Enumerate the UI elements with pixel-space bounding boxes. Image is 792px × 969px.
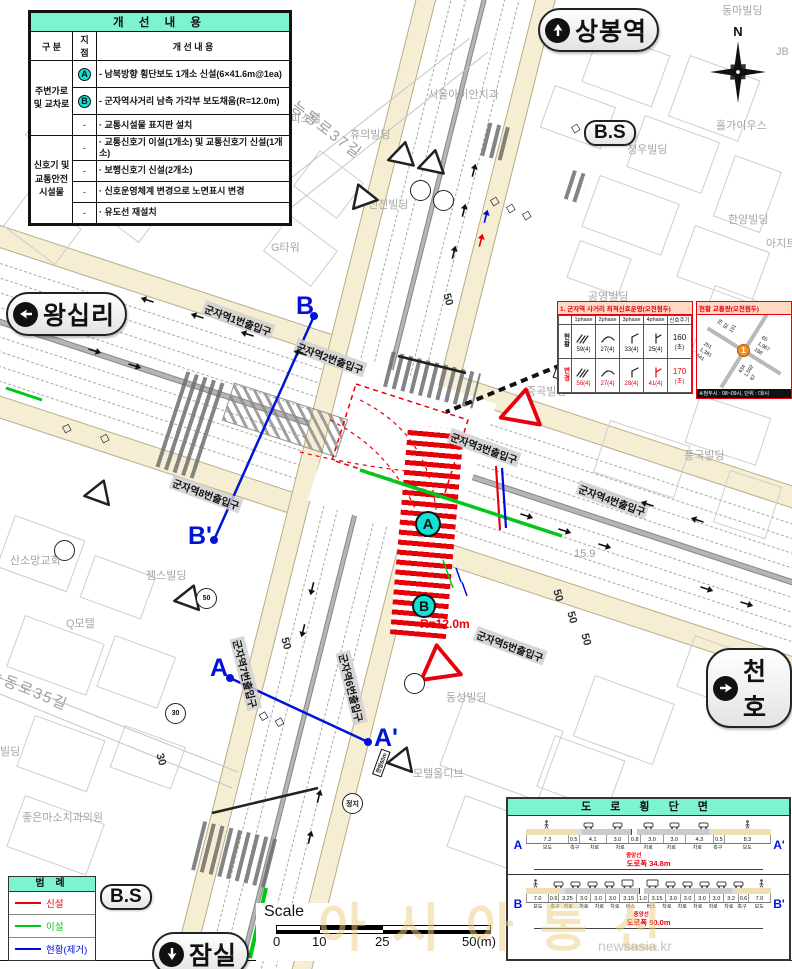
segment-width-value: 3.0 [606, 894, 620, 902]
building-label: 서울아이안치과 [428, 86, 499, 102]
stop-line [398, 356, 466, 373]
building-label: 동성빌딩 [446, 689, 486, 705]
segment-width-value: 7.0 [749, 894, 771, 902]
segment-type-label: 버스 [643, 903, 659, 910]
pedestrian-icon [526, 820, 568, 829]
improvement-row: · 교통신호기 이설(1개소) 및 교통신호기 신설(1개소) [97, 136, 290, 161]
section-end-label: A' [771, 820, 787, 852]
car-icon [661, 822, 687, 829]
segment-type-label: 보도 [526, 844, 569, 851]
bus-icon [643, 879, 662, 888]
elevation-label: 15.9 [574, 548, 595, 560]
building-label: 동마빌딩 [722, 2, 762, 18]
segment-width-value: 7.3 [526, 835, 569, 843]
pedestrian-icon [725, 820, 772, 829]
existing-works-blue [456, 468, 506, 596]
bus-icon [618, 879, 637, 888]
pedestrian-icon [526, 879, 545, 888]
building-label: 한양빌딩 [728, 211, 768, 227]
scale-segment [383, 926, 490, 933]
legend-item-label: 신설 [46, 896, 63, 910]
segment-type-label: 측구 [737, 903, 747, 910]
legend-title: 범 례 [9, 877, 95, 892]
direction-badge-cheonho: 천호 [706, 648, 792, 728]
improvement-row: · 교통시설물 표지판 설치 [97, 115, 290, 136]
segment-width-value: 3.15 [620, 894, 638, 902]
car-icon [573, 822, 605, 829]
segment-type-label: 보도 [526, 903, 550, 910]
new-warning-sign-icon [497, 382, 549, 429]
segment-type-label: 차로 [660, 844, 683, 851]
volume-numbers-west: 2511,391541 [697, 341, 716, 365]
legend-item-label: 현황(제거) [46, 942, 87, 956]
segment-type-label: 측구 [569, 844, 581, 851]
segment-type-label: 차로 [659, 903, 674, 910]
segment-width-value: 3.15 [649, 894, 667, 902]
building-label: 풍국빌딩 [684, 447, 724, 463]
segment-type-label: 차로 [690, 903, 705, 910]
segment-width-value: 3.0 [681, 894, 695, 902]
segment-type-label: 차로 [721, 903, 737, 910]
segment-width-value: 0.5 [714, 835, 725, 843]
cross-section-B: B7.00.63.253.03.03.03.151.03.153.03.03.0… [508, 875, 789, 929]
car-icon [662, 881, 679, 888]
signal-timing-table: 1. 군자역 사거리 최적신호운영(오전첨두) 1phase2phase3pha… [557, 301, 693, 394]
building-label: 정우빌딩 [627, 141, 667, 157]
segment-type-label: 버스 [623, 903, 639, 910]
car-icon [635, 822, 661, 829]
point-b-badge: B [78, 95, 91, 108]
left-arrow-icon [13, 302, 38, 327]
segment-width-value: 3.2 [724, 894, 739, 902]
segment-type-label: 차로 [560, 903, 576, 910]
section-end-label: B' [771, 879, 787, 911]
regulatory-sign-icon: 정지 [342, 793, 363, 814]
bus-stop-badge: B.S [584, 120, 636, 146]
legend-line-sample [15, 925, 41, 927]
improvement-row: - 군자역사거리 남측 가각부 보도채움(R=12.0m) [97, 88, 290, 115]
legend-item: 신설 [9, 892, 95, 915]
radius-label: R=12.0m [420, 617, 470, 631]
improvement-row: - 남북방향 횡단보도 1개소 신설(6×41.6m@1ea) [97, 61, 290, 88]
segment-width-value: 8.3 [725, 835, 771, 843]
phase-cell: 41(4) [644, 359, 668, 393]
legend-line-sample [15, 902, 41, 904]
section-a-label: A [210, 654, 228, 683]
section-start-label: A [510, 820, 526, 852]
phase-cell: 33(4) [620, 325, 644, 359]
down-arrow-icon [159, 942, 184, 967]
compass-star-icon [708, 39, 768, 105]
plan-drawing: 대영빌딩동마빌딩JB서울아이안치과평강오피스텔휴의빌딩홀가이우스정우빌딩선진빌딩… [0, 0, 792, 969]
scale-tick-label: 0 [273, 934, 280, 949]
section-start-label: B [510, 879, 526, 911]
signal-row-label: 변경 [559, 359, 572, 393]
phase-header: 신호주기 [668, 316, 692, 325]
segment-type-label: 차로 [576, 903, 591, 910]
direction-badge-wangsimni: 왕십리 [6, 292, 127, 336]
phase-header: 4phase [644, 316, 668, 325]
volume-panel-title: 현황 교통량(오전첨두) [697, 302, 791, 315]
legend: 범 례 신설이설현황(제거) [8, 876, 96, 961]
stop-line [212, 788, 318, 813]
segment-width-value: 3.0 [577, 894, 591, 902]
point-b-marker: B [412, 594, 436, 618]
group-category: 주변가로 및 교차로 [31, 61, 73, 136]
segment-type-label: 보도 [723, 844, 771, 851]
regulatory-sign-icon: 30 [165, 703, 186, 724]
scale-segment [277, 926, 320, 933]
car-icon [604, 822, 630, 829]
segment-type-label: 측구 [550, 903, 560, 910]
regulatory-sign-icon [410, 180, 431, 201]
cycle-cell: 160(초) [668, 325, 692, 359]
segment-width-value: 3.0 [591, 894, 605, 902]
building-label: 아지트 [766, 235, 792, 251]
segment-type-label: 차로 [609, 844, 632, 851]
intersection-number-marker: 1 [737, 344, 750, 357]
phase-cell: 58(4) [572, 359, 596, 393]
pedestrian-icon [752, 879, 771, 888]
segment-width-value: 1.0 [638, 894, 649, 902]
car-icon [567, 881, 584, 888]
road-cross-section-inset: 도 로 횡 단 면 A7.30.54.13.00.83.03.04.30.58.… [506, 797, 791, 961]
legend-item-label: 이설 [46, 919, 63, 933]
building-label: 홀가이우스 [716, 117, 767, 133]
improvement-table-title: 개 선 내 용 [31, 13, 290, 32]
segment-width-value: 3.0 [607, 835, 629, 843]
traffic-volume-panel: 현황 교통량(오전첨두) 1 2511,391541651,9671887992… [696, 301, 792, 399]
total-width-label: 도로폭 50.0m [623, 917, 673, 928]
car-icon [713, 881, 730, 888]
car-icon [584, 881, 601, 888]
segment-width-value: 3.0 [664, 835, 686, 843]
volume-diagram: 1 2511,391541651,96718879921514341,59267 [697, 315, 791, 389]
phase-header: 1phase [572, 316, 596, 325]
improvement-row: · 유도선 재설치 [97, 202, 290, 223]
segment-type-label: 차로 [592, 903, 607, 910]
legend-line-sample [15, 948, 41, 950]
segment-type-label: 차로 [637, 844, 660, 851]
signal-row-label: 현황 [559, 325, 572, 359]
segment-type-label: 차로 [675, 903, 690, 910]
segment-width-value: 3.0 [641, 835, 663, 843]
segment-width-value: 7.0 [526, 894, 549, 902]
car-icon [550, 881, 567, 888]
section-a-end-label: A' [374, 724, 398, 753]
building-label: JB [776, 46, 789, 58]
col-content: 개 선 내 용 [97, 32, 290, 61]
segment-width-value: 3.0 [695, 894, 709, 902]
regulatory-sign-icon [54, 540, 75, 561]
segment-type-label: 차로 [683, 844, 712, 851]
segment-width-value: 3.0 [666, 894, 680, 902]
building-label: Q모텔 [66, 615, 95, 631]
segment-type-label: 차로 [607, 903, 622, 910]
car-icon [696, 881, 713, 888]
legend-item: 현황(제거) [9, 938, 95, 960]
signal-table-title: 1. 군자역 사거리 최적신호운영(오전첨두) [558, 302, 692, 315]
scale-segment [320, 926, 383, 933]
improvement-table: 개 선 내 용 구 분 지 점 개 선 내 용 주변가로 및 교차로 A - 남… [28, 10, 292, 226]
scale-bar: Scale 0102550(m) [256, 903, 506, 961]
car-icon [687, 822, 720, 829]
segment-width-value: 0.5 [569, 835, 580, 843]
volume-note: ※첨두시 : 08~09시, 단위 : 대/시 [697, 389, 791, 398]
scale-tick-label: 50(m) [462, 934, 496, 949]
phase-cell: 25(4) [644, 325, 668, 359]
legend-item: 이설 [9, 915, 95, 938]
right-arrow-icon [713, 676, 738, 701]
car-icon [730, 881, 747, 888]
compass-north-label: N [706, 24, 770, 39]
phase-cell: 28(4) [620, 359, 644, 393]
group-category: 신호기 및 교통안전 시설물 [31, 136, 73, 224]
phase-header: 3phase [620, 316, 644, 325]
segment-width-value: 0.6 [739, 894, 749, 902]
bus-stop-badge: B.S [100, 884, 152, 910]
regulatory-sign-icon [433, 190, 454, 211]
building-label: 산소망교회 [10, 552, 61, 568]
segment-width-value: 4.3 [686, 835, 714, 843]
new-works-red [300, 384, 500, 530]
segment-width-value: 3.0 [710, 894, 724, 902]
phase-cell: 27(4) [596, 359, 620, 393]
phase-cell: 27(4) [596, 325, 620, 359]
section-b-label: B [296, 292, 314, 321]
point-a-marker: A [415, 511, 441, 537]
section-b-end-label: B' [188, 522, 212, 551]
volume-numbers-south: 4341,59267 [737, 360, 761, 382]
building-label: 빌딩 [0, 743, 20, 759]
segment-type-label: 차로 [705, 903, 720, 910]
direction-badge-jamsil: 잠실 [152, 932, 249, 969]
point-a-badge: A [78, 68, 91, 81]
segment-width-value: 4.1 [580, 835, 607, 843]
phase-header: 2phase [596, 316, 620, 325]
scale-tick-label: 25 [375, 934, 389, 949]
improvement-row: · 신호운영체계 변경으로 노면표시 변경 [97, 181, 290, 202]
scale-label: Scale [256, 903, 506, 921]
car-icon [679, 881, 696, 888]
cross-section-title: 도 로 횡 단 면 [508, 799, 789, 816]
up-arrow-icon [545, 18, 570, 43]
regulatory-sign-icon [404, 673, 425, 694]
segment-type-label: 차로 [580, 844, 608, 851]
cross-section-A: A7.30.54.13.00.83.03.04.30.58.3보도측구차로차로차… [508, 816, 789, 870]
improvement-row: · 보행신호기 신설(2개소) [97, 160, 290, 181]
direction-badge-sangbong: 상봉역 [538, 8, 659, 52]
volume-numbers-north: 7992151 [716, 316, 738, 334]
building-label: 모텔올디브 [413, 765, 464, 781]
col-category: 구 분 [31, 32, 73, 61]
segment-type-label: 보도 [747, 903, 771, 910]
total-width-label: 도로폭 34.8m [623, 858, 673, 869]
compass-rose: N [706, 24, 770, 110]
building-label: 좋은마소치과의원 [22, 809, 103, 825]
building-label: G타워 [271, 239, 300, 255]
segment-width-value: 0.8 [629, 835, 641, 843]
regulatory-sign-icon: 50 [196, 588, 217, 609]
segment-width-value: 3.25 [559, 894, 577, 902]
phase-cell: 59(4) [572, 325, 596, 359]
segment-width-value: 0.6 [549, 894, 559, 902]
cycle-cell: 170(초) [668, 359, 692, 393]
segment-type-label: 측구 [712, 844, 724, 851]
car-icon [601, 881, 618, 888]
scale-tick-label: 10 [312, 934, 326, 949]
col-point: 지 점 [73, 32, 97, 61]
